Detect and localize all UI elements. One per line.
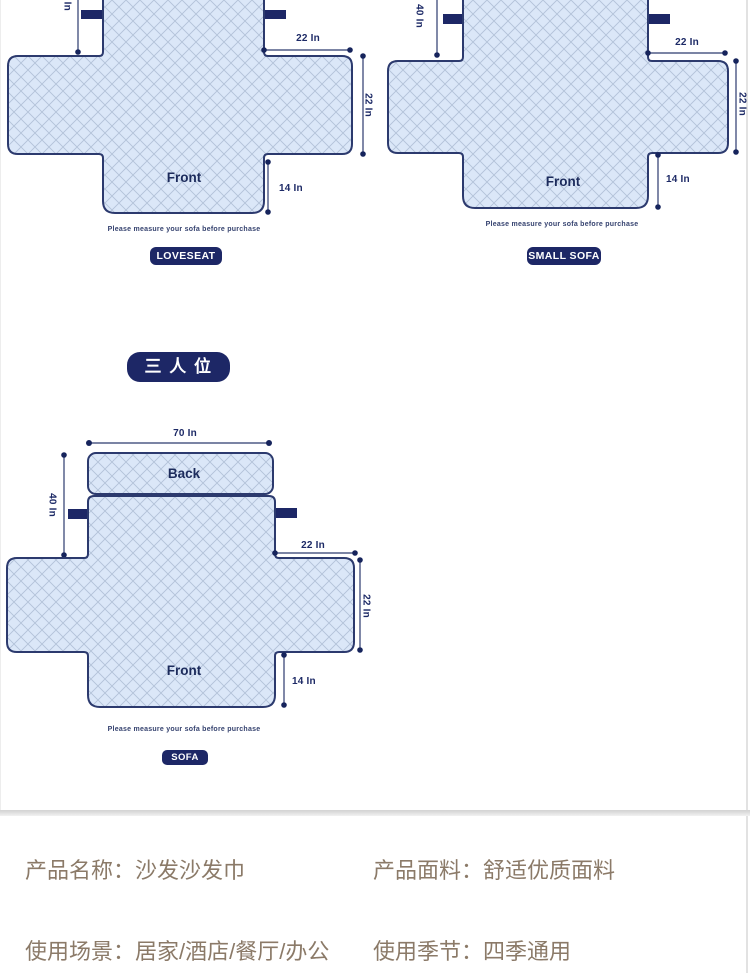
size-diagram-loveseat: 40 In 22 In 22 In 14 In xyxy=(0,0,375,285)
usage-season-value: 四季通用 xyxy=(483,939,571,964)
svg-text:22 In: 22 In xyxy=(363,93,374,117)
dimension-total-width: 70 In xyxy=(86,428,272,446)
strap-tab-right xyxy=(648,14,670,24)
svg-text:40 In: 40 In xyxy=(414,4,425,28)
loveseat-size-badge: LOVESEAT xyxy=(150,247,222,265)
size-diagram-small-sofa: 40 In 22 In 22 In 14 In Front P xyxy=(375,0,750,285)
product-name-row: 产品名称：沙发沙发巾 xyxy=(25,858,245,883)
size-diagram-sofa: 70 In Back 40 In 22 In xyxy=(0,420,750,710)
front-label: Front xyxy=(546,174,581,189)
strap-tab-left xyxy=(68,509,88,519)
product-name-value: 沙发沙发巾 xyxy=(135,858,245,883)
measure-note: Please measure your sofa before purchase xyxy=(34,226,334,233)
svg-text:40 In: 40 In xyxy=(62,0,73,11)
dimension-arm-top: 22 In xyxy=(645,37,728,56)
dimension-back-height: 40 In xyxy=(62,0,81,55)
product-fabric-value: 舒适优质面料 xyxy=(483,858,615,883)
dimension-arm-side: 22 In xyxy=(360,53,373,157)
dimension-arm-side: 22 In xyxy=(733,58,747,155)
svg-text:14 In: 14 In xyxy=(279,183,303,194)
dimension-back-height: 40 In xyxy=(47,452,67,558)
svg-text:22 In: 22 In xyxy=(296,33,320,44)
svg-text:22 In: 22 In xyxy=(675,37,699,48)
dimension-arm-top: 22 In xyxy=(261,33,353,53)
back-label: Back xyxy=(168,466,201,481)
product-name-label: 产品名称： xyxy=(25,858,135,883)
front-label: Front xyxy=(167,170,202,185)
section-divider xyxy=(0,810,750,816)
dimension-back-height: 40 In xyxy=(414,0,440,58)
sofa-size-badge: SOFA xyxy=(162,750,208,765)
strap-tab-right xyxy=(264,10,286,19)
strap-tab-right xyxy=(275,508,297,518)
usage-season-row: 使用季节：四季通用 xyxy=(373,939,571,964)
product-fabric-label: 产品面料： xyxy=(373,858,483,883)
dimension-arm-top: 22 In xyxy=(272,540,358,556)
product-fabric-row: 产品面料：舒适优质面料 xyxy=(373,858,615,883)
svg-text:40 In: 40 In xyxy=(47,493,58,517)
svg-text:22 In: 22 In xyxy=(737,92,748,116)
sofa-cover-drawing: 70 In Back 40 In 22 In xyxy=(0,420,750,710)
small-sofa-size-badge: SMALL SOFA xyxy=(527,247,601,265)
svg-text:22 In: 22 In xyxy=(361,594,372,618)
strap-tab-left xyxy=(443,14,463,24)
loveseat-cover-drawing: 40 In 22 In 22 In 14 In xyxy=(0,0,375,285)
dimension-arm-side: 22 In xyxy=(357,557,371,653)
dimension-front-height: 14 In xyxy=(655,152,690,210)
usage-scene-row: 使用场景：居家/酒店/餐厅/办公 xyxy=(25,939,329,964)
measure-note: Please measure your sofa before purchase xyxy=(412,221,712,228)
strap-tab-left xyxy=(81,10,103,19)
svg-text:70 In: 70 In xyxy=(173,428,197,439)
product-detail-page: 40 In 22 In 22 In 14 In xyxy=(0,0,750,973)
svg-text:14 In: 14 In xyxy=(292,676,316,687)
dimension-front-height: 14 In xyxy=(281,652,316,708)
usage-season-label: 使用季节： xyxy=(373,939,483,964)
measure-note: Please measure your sofa before purchase xyxy=(34,726,334,733)
dimension-front-height: 14 In xyxy=(265,159,303,215)
svg-text:22 In: 22 In xyxy=(301,540,325,551)
usage-scene-value: 居家/酒店/餐厅/办公 xyxy=(135,939,329,964)
small-sofa-cover-drawing: 40 In 22 In 22 In 14 In Front xyxy=(375,0,750,285)
svg-text:14 In: 14 In xyxy=(666,174,690,185)
usage-scene-label: 使用场景： xyxy=(25,939,135,964)
front-label: Front xyxy=(167,663,202,678)
three-seater-section-badge: 三 人 位 xyxy=(127,352,230,382)
